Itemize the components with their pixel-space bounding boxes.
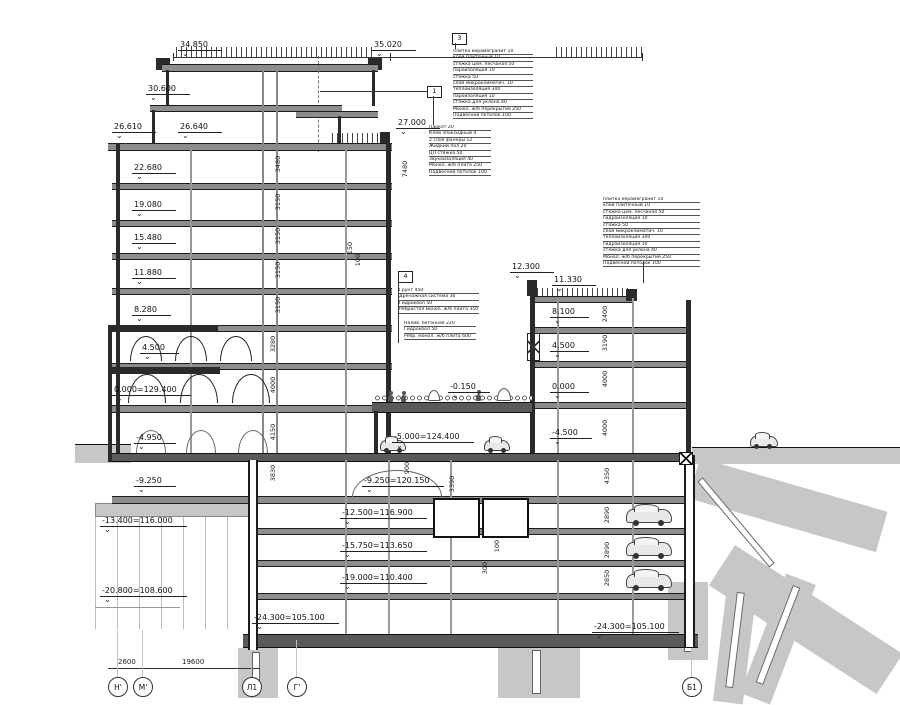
car-icon-street [750, 436, 778, 447]
shaft-cross-brace [527, 333, 540, 361]
level-mark-m4500: -4.500 [550, 428, 592, 439]
level-mark-22680: 22.680 [132, 163, 176, 174]
top-dim-tick-right [642, 53, 643, 61]
centerline-dashed [318, 56, 319, 152]
wall-anchor-x-marker [679, 452, 693, 465]
spec-line: Ребристая монол. ж/б плита 350 [399, 307, 479, 313]
level-mark-8100: 8.100 [550, 307, 589, 318]
arched-window-r1b [175, 336, 207, 361]
axis-leader-b1 [691, 648, 692, 677]
slab-11880 [112, 288, 392, 295]
soil-left-raft-band [95, 503, 257, 517]
level-mark-19080: 19.080 [132, 200, 176, 211]
person-icon [388, 395, 393, 402]
basement-wall-right [684, 455, 695, 647]
dim-7480: 7480 [401, 152, 409, 186]
right-roof-railing [537, 288, 632, 296]
bottom-dim-line [108, 668, 260, 669]
plaza-deck-slab [372, 402, 532, 413]
right-building-column-633 [632, 298, 634, 455]
dim-3390: 3390 [448, 467, 456, 501]
roof-railing-hatch-right [556, 47, 642, 57]
level-mark-m20800: -20.800=108.600 [100, 586, 187, 597]
annex-balcony-band-1 [108, 325, 218, 332]
level-mark-34850: 34.850 [178, 40, 222, 51]
level-mark-11880: 11.880 [132, 268, 176, 279]
stair-core-box-a [433, 498, 480, 538]
dim-2890-a: 2890 [603, 498, 611, 532]
spec-line: Ребр. монол. ж/б плита 600 [404, 334, 476, 340]
garage-arch-c [238, 430, 268, 453]
level-mark-m15750: -15.750=113.650 [340, 541, 427, 552]
level-mark-0000-left: 0.000=129.400 [112, 385, 191, 396]
dim-4000-left: 4000 [269, 368, 277, 402]
dim-100-b: 100 [354, 243, 362, 277]
slab-19000 [250, 593, 692, 600]
level-mark-0000-right: 0.000 [550, 382, 589, 393]
right-building-wall-right [686, 300, 691, 455]
level-mark-m12500: -12.500=116.900 [340, 508, 427, 519]
person-icon [401, 395, 406, 402]
spec-line: Подвесной потолок 100 [429, 170, 491, 176]
dim-100-a: 100 [493, 529, 501, 563]
dim-3190: 3190 [601, 326, 609, 360]
dim-3830: 3830 [269, 456, 277, 490]
dim-4150: 4150 [269, 415, 277, 449]
spec-list-4a: Грунт 450 Дренажная система 30 Гидроизол… [399, 288, 479, 314]
slab-22680 [112, 183, 392, 190]
car-icon-parking-1 [626, 509, 672, 523]
basement-column-557 [557, 460, 559, 634]
level-mark-15480: 15.480 [132, 233, 176, 244]
spec-list-4b: Налив. бетонная 220 Гидроизол 50 Ребр. м… [404, 321, 476, 340]
slab-26600 [108, 143, 392, 151]
foundation-raft [243, 634, 698, 648]
dim-4000-r2: 4000 [601, 411, 609, 445]
top-dim-tick-mid [390, 53, 391, 61]
top-dim-tick-left [173, 53, 174, 61]
annex-balcony-band-2 [108, 367, 220, 374]
axis-bubble-l1: Л1 [242, 677, 262, 697]
section-drawing-sheet: 34.850 35.020 30.600 26.610 26.640 27.00… [0, 0, 900, 705]
car-icon-parking-3 [626, 574, 672, 588]
level-mark-26640: 26.640 [178, 122, 222, 133]
person-icon [476, 394, 481, 401]
spec-list-1: Паркет 20 Клей эпоксидный 4 2 слоя фанер… [429, 125, 491, 176]
car-icon-parking-2 [626, 542, 672, 556]
soil-right-street [692, 447, 900, 464]
penthouse-wall-right [372, 70, 375, 106]
axis-bubble-g: Г' [287, 677, 307, 697]
spec-list-2: плитка керамогранит 10 клей плиточный 10… [603, 197, 700, 267]
dim-150: 150 [346, 231, 354, 265]
callout-box-1: 1 [427, 86, 442, 98]
callout-box-4: 4 [398, 271, 413, 283]
slab-15750 [250, 560, 692, 567]
axis-leader-g [296, 640, 297, 677]
spec-line: Подвесной потолок 100 [603, 261, 700, 267]
level-mark-12300: 12.300 [510, 262, 554, 273]
arched-window-r1c [220, 336, 252, 361]
right-building-wall-left [530, 283, 535, 455]
dim-3280: 3280 [269, 327, 277, 361]
arched-window-r2c [232, 374, 270, 403]
level-mark-m24300-right: -24.300=105.100 [592, 622, 679, 633]
pile-slot-center [532, 650, 541, 694]
stair-core-box-b [482, 498, 529, 538]
dim-300: 300 [481, 551, 489, 585]
dim-2850: 2850 [603, 561, 611, 595]
right-roof-slab-11330 [533, 296, 633, 303]
callout-2-leader [643, 262, 644, 283]
level-mark-26610: 26.610 [112, 122, 156, 133]
level-mark-11330: 11.330 [552, 275, 596, 286]
spec-line: Подвесной потолок 100 [453, 113, 533, 119]
slab-19080 [112, 220, 392, 227]
soil-left-piles-hatch [95, 517, 255, 629]
level-mark-30600: 30.600 [146, 84, 190, 95]
level-mark-8280: 8.280 [132, 305, 171, 316]
dim-3150-a: 3150 [274, 185, 282, 219]
dim-4350: 4350 [603, 459, 611, 493]
deck-support-wall [374, 411, 378, 455]
axis-leader-l1 [251, 650, 252, 677]
dim-900: 900 [403, 451, 411, 485]
axis-leader-m [142, 630, 143, 677]
dim-3150-d: 3150 [274, 288, 282, 322]
level-mark-m13400: -13.400=116.000 [100, 516, 187, 527]
axis-bubble-n: Н' [108, 677, 128, 697]
level-mark-4500-left: 4.500 [140, 343, 179, 354]
dim-3150-c: 3150 [274, 253, 282, 287]
bush-icon [497, 388, 511, 401]
axis-leader-n [117, 630, 118, 677]
dim-2600: 2600 [118, 658, 136, 666]
level-mark-m9250: -9.250 [134, 476, 176, 487]
level-mark-m19000: -19.000=110.400 [340, 573, 427, 584]
top-dim-line [173, 57, 643, 58]
slab-30600-step [296, 111, 378, 118]
slab-0000 [112, 405, 392, 413]
level-mark-4500-right: 4.500 [550, 341, 589, 352]
tall-building-wall-left [116, 143, 120, 460]
callout-1-leader-v [433, 96, 434, 125]
level-mark-35020: 35.020 [372, 40, 416, 51]
dim-4000-r1: 4000 [601, 362, 609, 396]
dim-3150-b: 3150 [274, 219, 282, 253]
penthouse-roof-slab [162, 64, 378, 72]
dim-3480: 3480 [274, 147, 282, 181]
car-icon-garage-right [484, 440, 510, 451]
column-line-190 [190, 149, 192, 453]
spec-list-3: плитка керамогранит 10 клей плиточный 10… [453, 49, 533, 119]
column-line-345 [345, 149, 347, 453]
callout-1-leader-h [320, 91, 427, 92]
soil-left-pile-tip-line [95, 607, 180, 608]
dim-19600: 19600 [182, 658, 204, 666]
level-mark-m0150: -0.150 [448, 382, 490, 393]
axis-bubble-m: М' [133, 677, 153, 697]
level-mark-m5000: -5.000=124.400 [392, 432, 474, 443]
level-mark-m4950: -4.950 [134, 433, 176, 444]
axis-bubble-b1: Б1 [682, 677, 702, 697]
level-mark-m24300-left: -24.300=105.100 [252, 613, 339, 624]
